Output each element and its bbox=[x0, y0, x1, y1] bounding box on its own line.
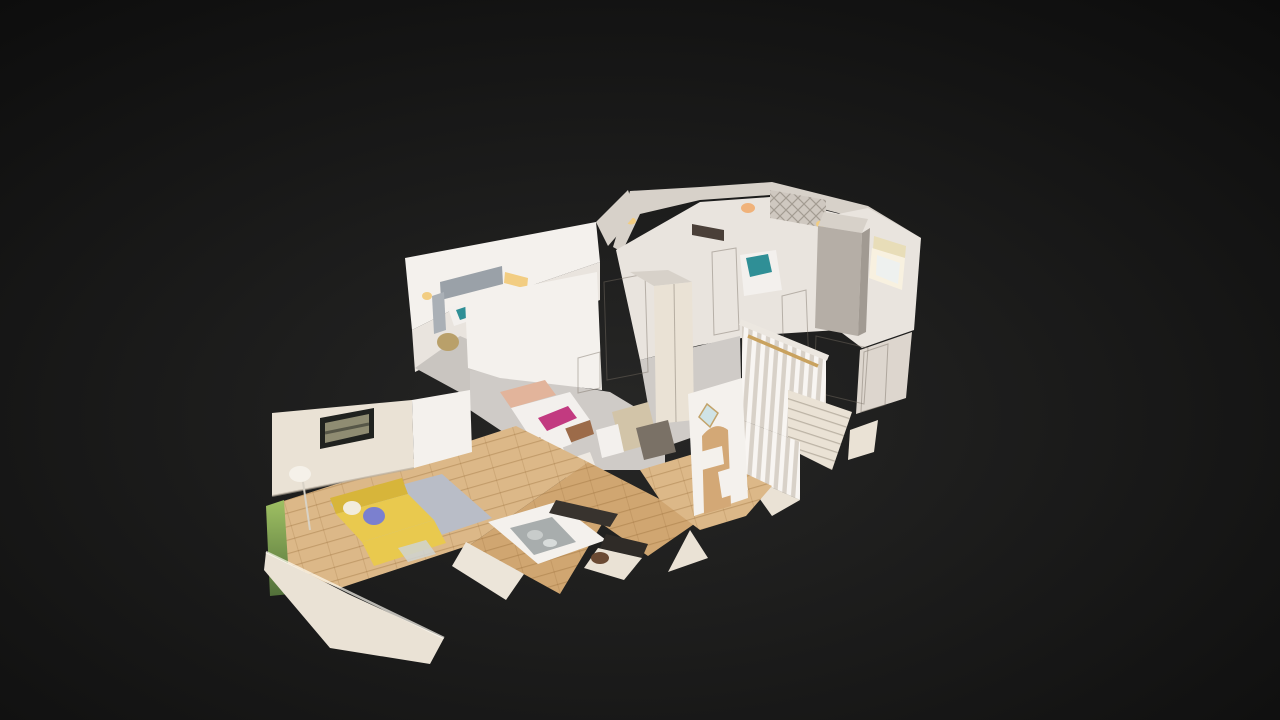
dish-rack bbox=[543, 539, 557, 547]
white-cushion bbox=[343, 501, 361, 515]
leather-bag bbox=[591, 552, 609, 564]
blue-cushion bbox=[363, 507, 385, 525]
room-hallway[interactable] bbox=[688, 378, 748, 516]
viewer-stage[interactable] bbox=[0, 0, 1280, 720]
sink-bowl bbox=[527, 530, 543, 540]
curtain-drop bbox=[432, 292, 446, 334]
dollhouse-model bbox=[0, 0, 1280, 720]
wicker-basket bbox=[437, 333, 459, 351]
floor-lamp-shade bbox=[289, 466, 311, 482]
tall-gray-wardrobe bbox=[815, 226, 862, 336]
warm-lamp-glow bbox=[741, 203, 755, 213]
sconce-glow bbox=[422, 292, 432, 300]
